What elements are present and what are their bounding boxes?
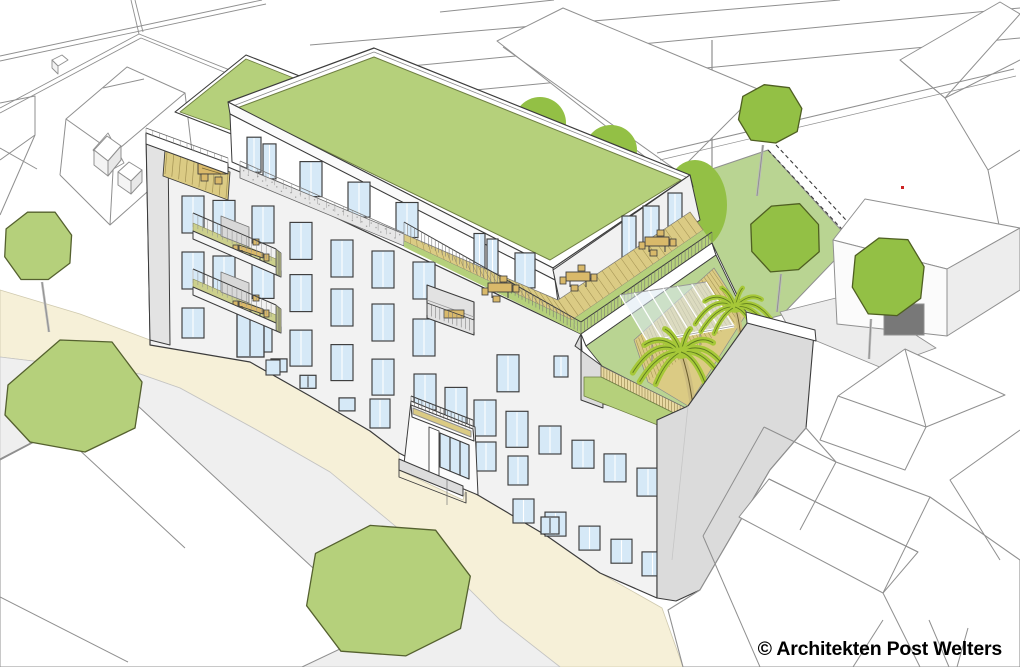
svg-text:© Architekten Post Welters: © Architekten Post Welters [758,638,1003,660]
